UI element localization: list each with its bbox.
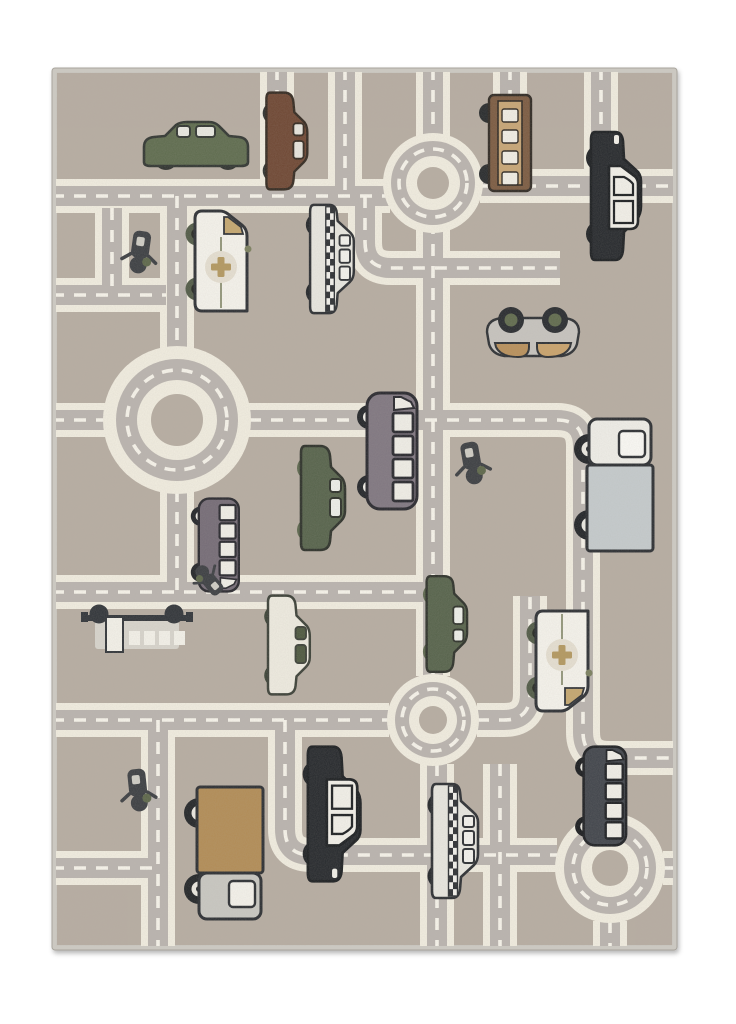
rug-print <box>52 68 677 950</box>
product-photo <box>0 0 736 1024</box>
rug-texture <box>52 68 677 950</box>
kids-road-play-rug <box>0 0 736 1024</box>
rug <box>52 68 677 950</box>
